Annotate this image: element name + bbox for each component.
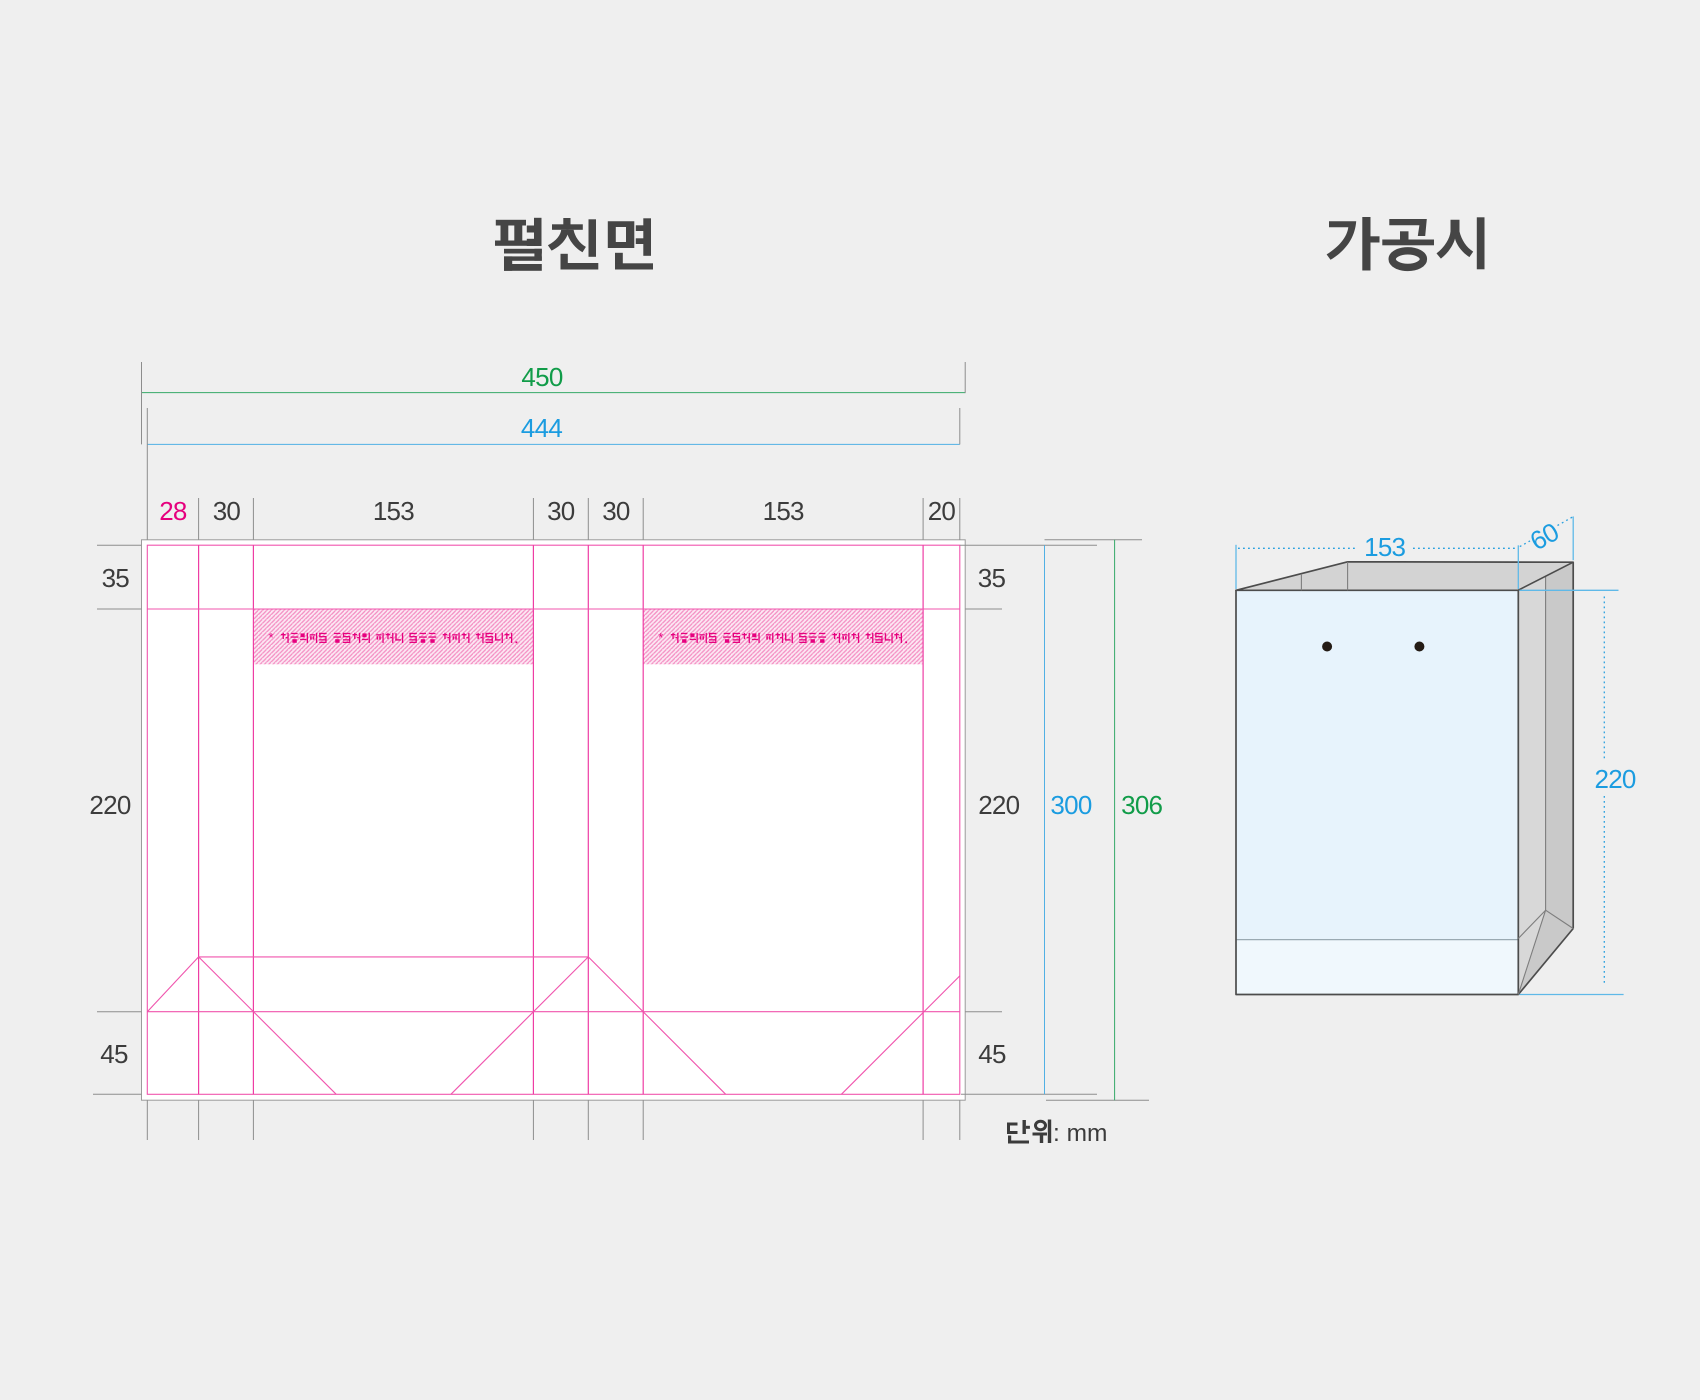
svg-text:300: 300: [1050, 790, 1091, 820]
svg-text:*: *: [658, 630, 663, 645]
svg-text:220: 220: [1595, 764, 1636, 794]
svg-text:45: 45: [978, 1039, 1006, 1069]
svg-text:: mm: : mm: [1053, 1120, 1107, 1147]
svg-text:20: 20: [928, 496, 956, 526]
svg-text:220: 220: [978, 790, 1019, 820]
svg-text:*: *: [269, 630, 274, 645]
svg-text:306: 306: [1121, 790, 1162, 820]
svg-text:153: 153: [763, 496, 804, 526]
svg-text:30: 30: [213, 496, 241, 526]
svg-text:45: 45: [100, 1039, 128, 1069]
svg-text:450: 450: [521, 362, 562, 392]
svg-text:153: 153: [373, 496, 414, 526]
svg-text:220: 220: [89, 790, 130, 820]
svg-text:30: 30: [547, 496, 575, 526]
svg-text:35: 35: [978, 563, 1006, 593]
svg-text:35: 35: [102, 563, 130, 593]
svg-text:28: 28: [159, 496, 187, 526]
svg-text:30: 30: [602, 496, 630, 526]
svg-text:153: 153: [1364, 532, 1405, 562]
svg-text:444: 444: [521, 413, 562, 443]
